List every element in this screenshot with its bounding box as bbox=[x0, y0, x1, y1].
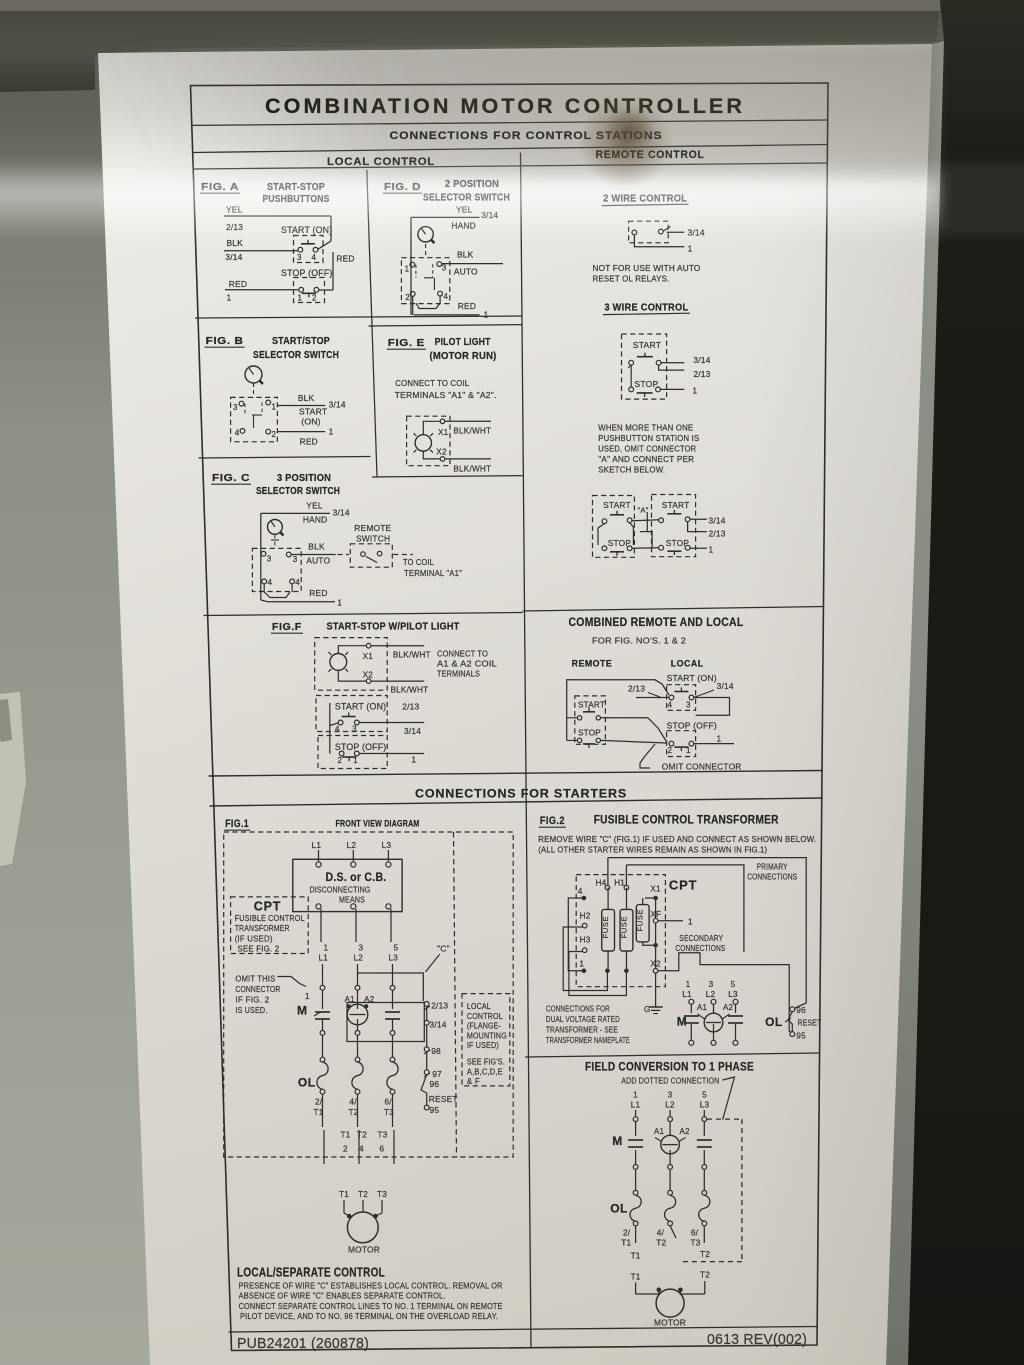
svg-text:BLK/WHT: BLK/WHT bbox=[393, 651, 431, 660]
svg-text:START: START bbox=[662, 500, 690, 510]
svg-text:H2: H2 bbox=[580, 912, 591, 921]
svg-text:STOP: STOP bbox=[634, 379, 658, 389]
svg-text:4: 4 bbox=[295, 578, 300, 587]
svg-text:BLK: BLK bbox=[308, 542, 325, 552]
svg-text:TRANSFORMER - SEE: TRANSFORMER - SEE bbox=[546, 1025, 618, 1035]
svg-text:PILOT LIGHT: PILOT LIGHT bbox=[435, 337, 491, 348]
svg-text:G: G bbox=[644, 1005, 651, 1014]
svg-text:A1 & A2 COIL: A1 & A2 COIL bbox=[437, 659, 497, 669]
svg-text:COMBINED REMOTE AND LOCAL: COMBINED REMOTE AND LOCAL bbox=[569, 615, 744, 629]
svg-text:AUTO: AUTO bbox=[306, 555, 330, 565]
svg-text:T3: T3 bbox=[691, 1239, 701, 1248]
svg-text:FUSE: FUSE bbox=[601, 916, 610, 939]
svg-text:M: M bbox=[677, 1014, 687, 1028]
svg-text:A1: A1 bbox=[654, 1127, 665, 1136]
svg-text:HAND: HAND bbox=[303, 515, 328, 525]
svg-text:4: 4 bbox=[312, 253, 317, 262]
svg-text:3: 3 bbox=[359, 944, 364, 953]
svg-text:STOP: STOP bbox=[578, 729, 601, 738]
svg-text:96: 96 bbox=[430, 1079, 440, 1089]
svg-text:"A" AND CONNECT PER: "A" AND CONNECT PER bbox=[598, 454, 694, 464]
svg-text:START: START bbox=[603, 500, 631, 510]
svg-text:2/: 2/ bbox=[623, 1229, 631, 1238]
svg-text:3/14: 3/14 bbox=[329, 400, 346, 410]
svg-text:IF USED): IF USED) bbox=[467, 1041, 499, 1050]
svg-text:3: 3 bbox=[293, 555, 298, 564]
svg-text:3/14: 3/14 bbox=[333, 507, 350, 517]
svg-text:BLK/WHT: BLK/WHT bbox=[453, 427, 491, 436]
svg-text:2: 2 bbox=[405, 293, 410, 302]
svg-text:1: 1 bbox=[353, 756, 358, 765]
svg-text:A1: A1 bbox=[697, 1003, 708, 1012]
svg-text:1: 1 bbox=[688, 244, 693, 254]
svg-text:FUSE: FUSE bbox=[636, 909, 645, 932]
svg-text:2/13: 2/13 bbox=[628, 684, 645, 694]
svg-text:FIG.F: FIG.F bbox=[272, 621, 302, 633]
svg-text:1: 1 bbox=[709, 545, 714, 555]
svg-text:MOTOR: MOTOR bbox=[654, 1318, 686, 1328]
svg-text:L2: L2 bbox=[706, 990, 716, 999]
svg-text:3/14: 3/14 bbox=[709, 516, 726, 526]
svg-text:AUTO: AUTO bbox=[454, 267, 478, 277]
svg-text:T2: T2 bbox=[349, 1108, 359, 1117]
svg-text:3: 3 bbox=[297, 253, 302, 262]
svg-text:CONNECTIONS: CONNECTIONS bbox=[675, 943, 725, 953]
svg-text:(IF USED): (IF USED) bbox=[235, 934, 273, 943]
svg-text:96: 96 bbox=[796, 1005, 806, 1015]
svg-text:LOCAL: LOCAL bbox=[467, 1002, 491, 1011]
svg-text:3/14: 3/14 bbox=[225, 252, 242, 262]
svg-text:OMIT THIS: OMIT THIS bbox=[235, 974, 275, 984]
svg-text:4: 4 bbox=[335, 725, 340, 734]
svg-text:3/14: 3/14 bbox=[717, 681, 734, 691]
svg-text:BLK: BLK bbox=[457, 250, 474, 260]
svg-text:T2: T2 bbox=[656, 1239, 666, 1248]
svg-text:FUSIBLE CONTROL TRANSFORMER: FUSIBLE CONTROL TRANSFORMER bbox=[594, 813, 779, 827]
svg-text:BLK: BLK bbox=[227, 238, 244, 248]
svg-text:TERMINALS "A1" & "A2".: TERMINALS "A1" & "A2". bbox=[395, 390, 497, 400]
svg-text:RESET: RESET bbox=[429, 1094, 458, 1104]
svg-text:SECONDARY: SECONDARY bbox=[679, 933, 723, 943]
svg-text:OL: OL bbox=[298, 1076, 316, 1090]
svg-text:START/STOP: START/STOP bbox=[272, 336, 330, 347]
svg-text:PRIMARY: PRIMARY bbox=[757, 862, 788, 872]
svg-text:T1: T1 bbox=[314, 1108, 324, 1117]
svg-text:L3: L3 bbox=[700, 1101, 710, 1110]
svg-text:L3: L3 bbox=[389, 954, 399, 963]
svg-text:3/14: 3/14 bbox=[404, 726, 421, 736]
svg-text:2: 2 bbox=[272, 430, 277, 439]
svg-text:6: 6 bbox=[380, 1145, 385, 1154]
svg-text:4: 4 bbox=[359, 1145, 364, 1154]
svg-text:ABSENCE OF WIRE "C" ENABLES SE: ABSENCE OF WIRE "C" ENABLES SEPARATE CON… bbox=[239, 1291, 446, 1301]
svg-text:TRANSFORMER: TRANSFORMER bbox=[235, 924, 290, 933]
svg-text:2: 2 bbox=[343, 1145, 348, 1154]
svg-text:SEE FIG'S.: SEE FIG'S. bbox=[467, 1058, 505, 1067]
svg-text:T2: T2 bbox=[700, 1250, 710, 1259]
svg-text:2: 2 bbox=[668, 746, 673, 755]
svg-text:FIELD CONVERSION TO 1 PHASE: FIELD CONVERSION TO 1 PHASE bbox=[585, 1060, 754, 1074]
svg-text:RED: RED bbox=[458, 301, 476, 311]
svg-text:T1: T1 bbox=[621, 1239, 631, 1248]
svg-text:4: 4 bbox=[443, 292, 448, 301]
svg-text:2/13: 2/13 bbox=[709, 528, 726, 538]
svg-text:L1: L1 bbox=[682, 990, 692, 999]
svg-text:CONTROL: CONTROL bbox=[467, 1012, 503, 1021]
svg-text:98: 98 bbox=[431, 1046, 441, 1056]
svg-text:START: START bbox=[299, 407, 328, 417]
svg-text:1: 1 bbox=[227, 293, 232, 303]
svg-text:T3: T3 bbox=[377, 1190, 387, 1199]
svg-text:3/14: 3/14 bbox=[693, 355, 710, 365]
svg-text:L1: L1 bbox=[319, 954, 329, 963]
svg-text:RED: RED bbox=[229, 279, 247, 289]
svg-text:T1: T1 bbox=[341, 1131, 351, 1140]
svg-text:PUB24201 (260878): PUB24201 (260878) bbox=[237, 1335, 369, 1352]
svg-text:6/: 6/ bbox=[385, 1098, 393, 1107]
svg-text:MEANS: MEANS bbox=[339, 895, 365, 905]
svg-text:X1: X1 bbox=[438, 428, 449, 437]
svg-text:H3: H3 bbox=[580, 936, 591, 945]
svg-text:X1: X1 bbox=[363, 652, 374, 661]
svg-text:NOT FOR USE WITH AUTO: NOT FOR USE WITH AUTO bbox=[593, 263, 701, 273]
svg-text:2: 2 bbox=[312, 294, 317, 303]
svg-text:1: 1 bbox=[329, 427, 334, 437]
svg-text:T1: T1 bbox=[339, 1190, 349, 1199]
svg-text:IS USED.: IS USED. bbox=[235, 1005, 267, 1015]
svg-text:4: 4 bbox=[578, 887, 583, 896]
svg-text:L2: L2 bbox=[347, 840, 357, 850]
svg-text:5: 5 bbox=[394, 944, 399, 953]
svg-text:FUSIBLE CONTROL: FUSIBLE CONTROL bbox=[235, 914, 305, 923]
svg-text:RED: RED bbox=[300, 437, 318, 447]
svg-text:L3: L3 bbox=[728, 990, 738, 999]
svg-text:1: 1 bbox=[633, 1091, 638, 1100]
svg-text:(ALL OTHER STARTER WIRES REMAI: (ALL OTHER STARTER WIRES REMAIN AS SHOWN… bbox=[538, 844, 767, 854]
svg-text:3: 3 bbox=[686, 701, 691, 710]
svg-text:6/: 6/ bbox=[691, 1229, 699, 1238]
svg-text:1: 1 bbox=[692, 386, 697, 396]
svg-text:RED: RED bbox=[336, 254, 354, 264]
svg-text:FRONT VIEW DIAGRAM: FRONT VIEW DIAGRAM bbox=[336, 819, 420, 829]
svg-text:L1: L1 bbox=[631, 1101, 641, 1110]
svg-text:A,B,C,D,E: A,B,C,D,E bbox=[467, 1067, 503, 1076]
svg-text:(FLANGE-: (FLANGE- bbox=[467, 1022, 501, 1031]
svg-text:1: 1 bbox=[298, 294, 303, 303]
svg-text:MOTOR: MOTOR bbox=[348, 1245, 380, 1255]
svg-text:CONNECT SEPARATE CONTROL LINES: CONNECT SEPARATE CONTROL LINES TO NO. 1 … bbox=[239, 1301, 503, 1311]
svg-text:START: START bbox=[633, 340, 662, 350]
svg-text:CPT: CPT bbox=[669, 878, 697, 893]
svg-text:3: 3 bbox=[352, 725, 357, 734]
svg-text:1: 1 bbox=[272, 402, 277, 411]
svg-text:PUSHBUTTON STATION IS: PUSHBUTTON STATION IS bbox=[598, 433, 699, 443]
svg-text:RESET: RESET bbox=[798, 1019, 822, 1028]
svg-text:3: 3 bbox=[668, 1091, 673, 1100]
svg-text:95: 95 bbox=[430, 1105, 440, 1115]
svg-text:2/13: 2/13 bbox=[402, 702, 419, 712]
svg-text:1: 1 bbox=[337, 598, 342, 608]
svg-text:3 POSITION: 3 POSITION bbox=[277, 473, 331, 484]
svg-text:X1: X1 bbox=[650, 885, 661, 894]
svg-text:T3: T3 bbox=[378, 1131, 388, 1140]
svg-text:1: 1 bbox=[411, 755, 416, 765]
svg-text:FIG.1: FIG.1 bbox=[225, 818, 249, 830]
svg-text:RED: RED bbox=[309, 588, 327, 598]
svg-text:STOP (OFF): STOP (OFF) bbox=[281, 268, 333, 278]
svg-text:L1: L1 bbox=[312, 840, 322, 850]
svg-text:T2: T2 bbox=[358, 1190, 368, 1199]
svg-text:4: 4 bbox=[668, 701, 673, 710]
svg-text:3 WIRE CONTROL: 3 WIRE CONTROL bbox=[604, 302, 688, 314]
svg-text:FIG. B: FIG. B bbox=[206, 335, 244, 347]
svg-text:BLK/WHT: BLK/WHT bbox=[391, 686, 429, 695]
svg-text:5: 5 bbox=[702, 1091, 707, 1100]
svg-text:1: 1 bbox=[484, 309, 489, 319]
svg-text:4/: 4/ bbox=[350, 1098, 358, 1107]
svg-text:START (ON): START (ON) bbox=[335, 702, 386, 712]
svg-text:PILOT DEVICE, AND TO NO. 96 TE: PILOT DEVICE, AND TO NO. 96 TERMINAL ON … bbox=[240, 1311, 498, 1321]
svg-text:T2: T2 bbox=[357, 1131, 367, 1140]
svg-text:DUAL VOLTAGE RATED: DUAL VOLTAGE RATED bbox=[546, 1014, 620, 1024]
svg-text:OMIT CONNECTOR: OMIT CONNECTOR bbox=[662, 762, 742, 772]
svg-text:STOP (OFF): STOP (OFF) bbox=[667, 721, 717, 731]
svg-text:(ON): (ON) bbox=[301, 417, 320, 427]
svg-text:RESET OL RELAYS.: RESET OL RELAYS. bbox=[593, 274, 670, 284]
svg-text:2/13: 2/13 bbox=[693, 369, 710, 379]
svg-text:1: 1 bbox=[688, 917, 693, 927]
svg-text:1: 1 bbox=[717, 734, 722, 744]
svg-text:SELECTOR SWITCH: SELECTOR SWITCH bbox=[253, 350, 339, 361]
svg-text:TRANSFORMER NAMEPLATE: TRANSFORMER NAMEPLATE bbox=[546, 1035, 630, 1045]
svg-text:& F: & F bbox=[467, 1077, 480, 1086]
svg-text:FIG.2: FIG.2 bbox=[540, 815, 565, 827]
svg-text:5: 5 bbox=[731, 980, 736, 989]
svg-text:SEE FIG. 2: SEE FIG. 2 bbox=[237, 945, 279, 954]
svg-text:3: 3 bbox=[442, 264, 447, 273]
svg-text:USED, OMIT CONNECTOR: USED, OMIT CONNECTOR bbox=[598, 444, 696, 454]
svg-text:1: 1 bbox=[579, 960, 584, 969]
svg-text:FIG. E: FIG. E bbox=[388, 337, 425, 349]
svg-text:D.S. or C.B.: D.S. or C.B. bbox=[326, 870, 387, 884]
svg-text:CONNECTOR: CONNECTOR bbox=[235, 984, 280, 994]
svg-text:(MOTOR RUN): (MOTOR RUN) bbox=[430, 351, 497, 362]
svg-text:M: M bbox=[612, 1134, 622, 1148]
svg-text:A2: A2 bbox=[680, 1127, 691, 1136]
svg-text:1: 1 bbox=[305, 992, 310, 1001]
svg-text:START-STOP W/PILOT LIGHT: START-STOP W/PILOT LIGHT bbox=[327, 622, 460, 633]
svg-text:2/13: 2/13 bbox=[431, 1001, 448, 1011]
svg-text:H1: H1 bbox=[614, 879, 625, 888]
svg-text:BLK: BLK bbox=[298, 393, 315, 403]
svg-text:DISCONNECTING: DISCONNECTING bbox=[310, 884, 371, 894]
svg-text:T3: T3 bbox=[384, 1108, 394, 1117]
svg-text:X2: X2 bbox=[436, 448, 447, 457]
svg-text:L2: L2 bbox=[665, 1101, 675, 1110]
svg-text:SWITCH: SWITCH bbox=[356, 534, 390, 544]
svg-text:4/: 4/ bbox=[657, 1229, 665, 1238]
svg-text:T1: T1 bbox=[631, 1252, 641, 1261]
svg-text:M: M bbox=[297, 1004, 308, 1018]
svg-text:2: 2 bbox=[338, 756, 343, 765]
svg-text:OL: OL bbox=[610, 1202, 627, 1216]
svg-text:START: START bbox=[578, 701, 605, 710]
svg-text:CONNECTIONS FOR: CONNECTIONS FOR bbox=[546, 1004, 610, 1014]
svg-text:CONNECT TO: CONNECT TO bbox=[437, 649, 488, 659]
svg-text:CONNECTIONS: CONNECTIONS bbox=[747, 872, 797, 882]
svg-text:L2: L2 bbox=[354, 954, 364, 963]
svg-text:REMOTE: REMOTE bbox=[354, 523, 391, 533]
svg-text:YEL: YEL bbox=[306, 501, 323, 511]
svg-text:CONNECTIONS FOR STARTERS: CONNECTIONS FOR STARTERS bbox=[415, 787, 627, 801]
svg-text:ADD DOTTED CONNECTION: ADD DOTTED CONNECTION bbox=[621, 1075, 719, 1085]
svg-text:95: 95 bbox=[796, 1031, 806, 1041]
svg-text:CPT: CPT bbox=[254, 900, 281, 914]
svg-text:SELECTOR SWITCH: SELECTOR SWITCH bbox=[256, 486, 340, 497]
svg-text:OL: OL bbox=[765, 1015, 782, 1029]
svg-text:3: 3 bbox=[233, 403, 238, 412]
svg-text:LOCAL: LOCAL bbox=[671, 659, 704, 669]
svg-text:BLK/WHT: BLK/WHT bbox=[453, 465, 491, 474]
svg-text:4: 4 bbox=[235, 428, 240, 437]
svg-text:A2: A2 bbox=[723, 1003, 734, 1012]
svg-text:1: 1 bbox=[686, 980, 691, 989]
svg-text:3: 3 bbox=[267, 555, 272, 564]
svg-text:FOR FIG. NO'S. 1 & 2: FOR FIG. NO'S. 1 & 2 bbox=[592, 636, 686, 646]
svg-text:FIG. C: FIG. C bbox=[212, 472, 250, 484]
svg-text:MOUNTING: MOUNTING bbox=[467, 1031, 507, 1040]
svg-text:3/14: 3/14 bbox=[430, 1020, 447, 1030]
svg-text:TERMINALS: TERMINALS bbox=[437, 669, 480, 679]
svg-text:4: 4 bbox=[268, 578, 273, 587]
svg-text:T1: T1 bbox=[631, 1273, 641, 1282]
svg-text:PRESENCE OF WIRE "C" ESTABLISH: PRESENCE OF WIRE "C" ESTABLISHES LOCAL C… bbox=[239, 1281, 503, 1291]
svg-text:TERMINAL "A1": TERMINAL "A1" bbox=[404, 568, 462, 578]
svg-text:97: 97 bbox=[432, 1069, 442, 1079]
svg-text:CONNECT TO COIL: CONNECT TO COIL bbox=[395, 378, 469, 388]
svg-text:0613 REV(002): 0613 REV(002) bbox=[707, 1331, 807, 1348]
svg-text:TO COIL: TO COIL bbox=[403, 557, 434, 567]
svg-text:2/: 2/ bbox=[315, 1098, 323, 1107]
svg-text:L3: L3 bbox=[382, 840, 392, 850]
svg-text:T2: T2 bbox=[700, 1271, 710, 1280]
svg-text:LOCAL/SEPARATE CONTROL: LOCAL/SEPARATE CONTROL bbox=[237, 1264, 385, 1279]
svg-text:1: 1 bbox=[324, 944, 329, 953]
svg-text:REMOVE WIRE "C" (FIG.1) IF USE: REMOVE WIRE "C" (FIG.1) IF USED AND CONN… bbox=[538, 834, 816, 844]
svg-text:START (ON): START (ON) bbox=[667, 673, 717, 683]
svg-text:IF FIG. 2: IF FIG. 2 bbox=[235, 995, 269, 1005]
svg-text:STOP (OFF): STOP (OFF) bbox=[335, 742, 387, 752]
svg-text:REMOTE: REMOTE bbox=[572, 659, 613, 669]
svg-text:FUSE: FUSE bbox=[620, 916, 629, 939]
svg-text:WHEN MORE THAN ONE: WHEN MORE THAN ONE bbox=[598, 423, 693, 433]
svg-text:1: 1 bbox=[405, 264, 410, 273]
svg-text:3: 3 bbox=[709, 980, 714, 989]
svg-text:"C": "C" bbox=[437, 944, 450, 954]
svg-text:1: 1 bbox=[686, 746, 691, 755]
svg-text:SKETCH BELOW.: SKETCH BELOW. bbox=[598, 465, 665, 475]
